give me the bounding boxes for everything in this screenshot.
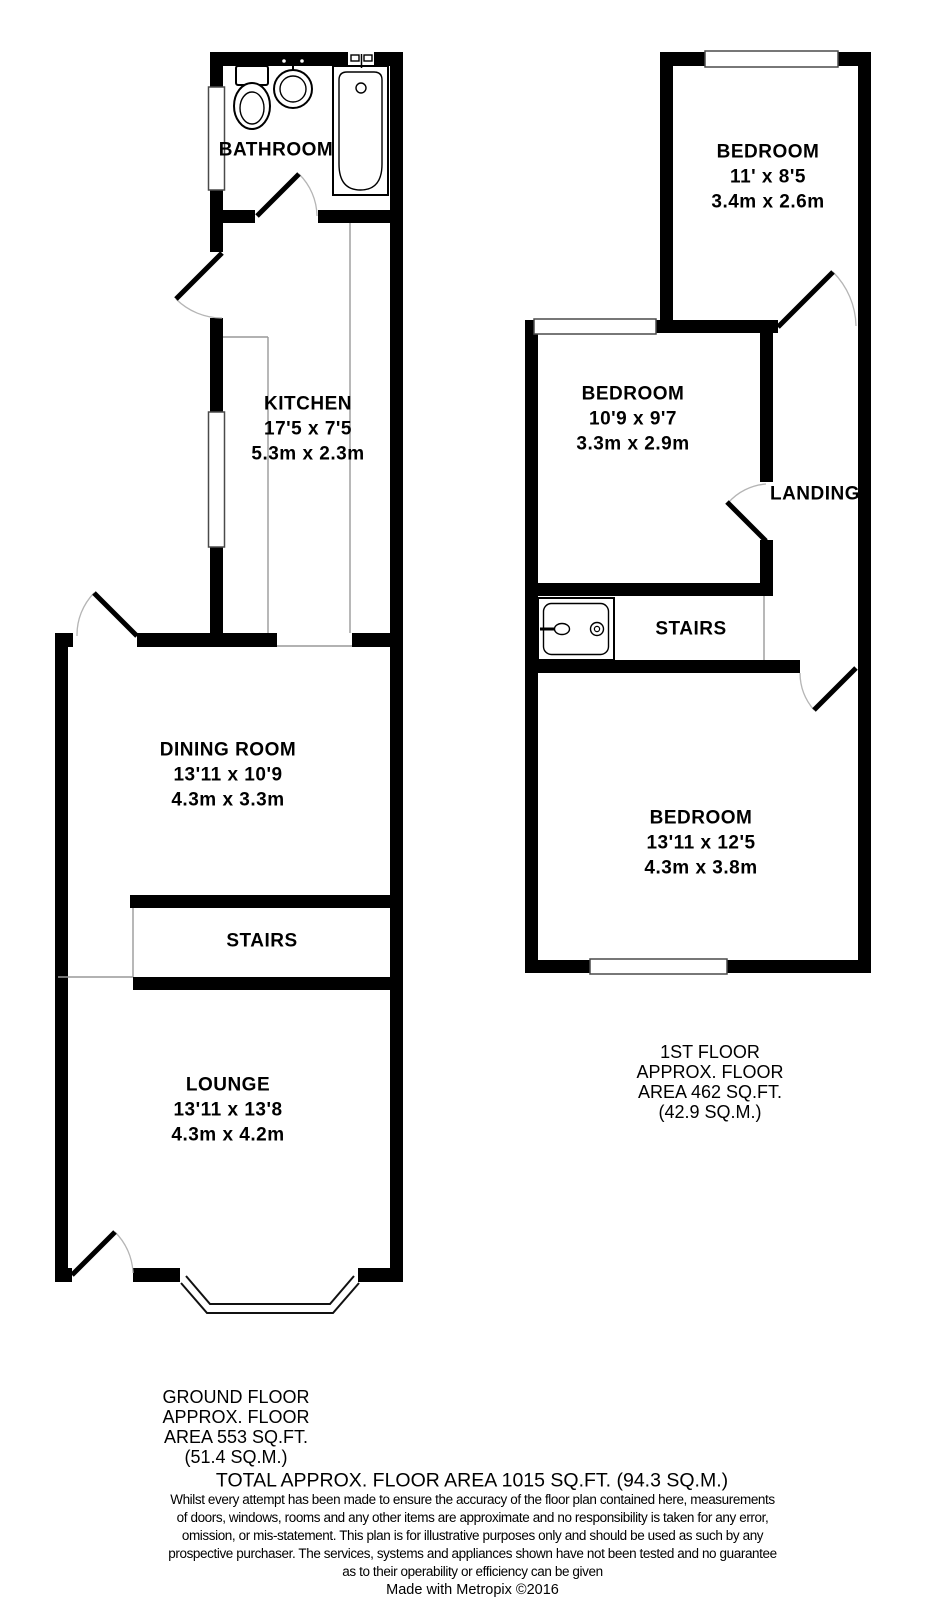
room-name: BEDROOM — [644, 806, 757, 831]
caption-line: APPROX. FLOOR — [162, 1407, 309, 1427]
room-label-bedroom-front: BEDROOM 11' x 8'5 3.4m x 2.6m — [711, 140, 824, 215]
room-size-imperial: 13'11 x 10'9 — [160, 763, 296, 788]
disclaimer-line: as to their operability or efficiency ca… — [0, 1563, 945, 1581]
room-size-imperial: 13'11 x 13'8 — [171, 1098, 284, 1123]
room-name: BATHROOM — [219, 138, 333, 163]
room-label-bedroom-middle: BEDROOM 10'9 x 9'7 3.3m x 2.9m — [576, 382, 689, 457]
room-name: STAIRS — [226, 929, 297, 954]
room-size-imperial: 11' x 8'5 — [711, 165, 824, 190]
room-name: LANDING — [770, 482, 860, 507]
disclaimer: Whilst every attempt has been made to en… — [0, 1491, 945, 1599]
ground-floor-caption: GROUND FLOOR APPROX. FLOOR AREA 553 SQ.F… — [162, 1387, 309, 1467]
room-size-metric: 3.3m x 2.9m — [576, 432, 689, 457]
caption-line: (42.9 SQ.M.) — [636, 1102, 783, 1122]
room-label-bedroom-rear: BEDROOM 13'11 x 12'5 4.3m x 3.8m — [644, 806, 757, 881]
room-label-stairs-ground: STAIRS — [226, 929, 297, 954]
room-name: BEDROOM — [711, 140, 824, 165]
room-name: STAIRS — [655, 617, 726, 642]
room-size-metric: 4.3m x 3.8m — [644, 856, 757, 881]
room-size-metric: 4.3m x 4.2m — [171, 1123, 284, 1148]
caption-line: AREA 553 SQ.FT. — [162, 1427, 309, 1447]
room-size-metric: 4.3m x 3.3m — [160, 788, 296, 813]
caption-line: GROUND FLOOR — [162, 1387, 309, 1407]
floorplan-page: BATHROOM KITCHEN 17'5 x 7'5 5.3m x 2.3m … — [0, 0, 945, 1600]
disclaimer-line: prospective purchaser. The services, sys… — [0, 1545, 945, 1563]
room-label-dining-room: DINING ROOM 13'11 x 10'9 4.3m x 3.3m — [160, 738, 296, 813]
room-label-lounge: LOUNGE 13'11 x 13'8 4.3m x 4.2m — [171, 1073, 284, 1148]
disclaimer-line: of doors, windows, rooms and any other i… — [0, 1509, 945, 1527]
room-name: BEDROOM — [576, 382, 689, 407]
caption-line: 1ST FLOOR — [636, 1042, 783, 1062]
room-size-imperial: 13'11 x 12'5 — [644, 831, 757, 856]
room-size-imperial: 17'5 x 7'5 — [251, 417, 364, 442]
metropix-credit: Made with Metropix ©2016 — [0, 1581, 945, 1599]
room-name: DINING ROOM — [160, 738, 296, 763]
room-label-landing: LANDING — [770, 482, 860, 507]
room-name: LOUNGE — [171, 1073, 284, 1098]
disclaimer-line: Whilst every attempt has been made to en… — [0, 1491, 945, 1509]
room-label-stairs-first: STAIRS — [655, 617, 726, 642]
disclaimer-line: omission, or mis-statement. This plan is… — [0, 1527, 945, 1545]
labels-overlay: BATHROOM KITCHEN 17'5 x 7'5 5.3m x 2.3m … — [0, 0, 945, 1600]
caption-line: APPROX. FLOOR — [636, 1062, 783, 1082]
room-label-bathroom: BATHROOM — [219, 138, 333, 163]
room-label-kitchen: KITCHEN 17'5 x 7'5 5.3m x 2.3m — [251, 392, 364, 467]
room-size-metric: 3.4m x 2.6m — [711, 190, 824, 215]
total-floor-area: TOTAL APPROX. FLOOR AREA 1015 SQ.FT. (94… — [216, 1470, 728, 1493]
room-name: KITCHEN — [251, 392, 364, 417]
room-size-imperial: 10'9 x 9'7 — [576, 407, 689, 432]
caption-line: AREA 462 SQ.FT. — [636, 1082, 783, 1102]
caption-line: (51.4 SQ.M.) — [162, 1447, 309, 1467]
room-size-metric: 5.3m x 2.3m — [251, 442, 364, 467]
first-floor-caption: 1ST FLOOR APPROX. FLOOR AREA 462 SQ.FT. … — [636, 1042, 783, 1122]
